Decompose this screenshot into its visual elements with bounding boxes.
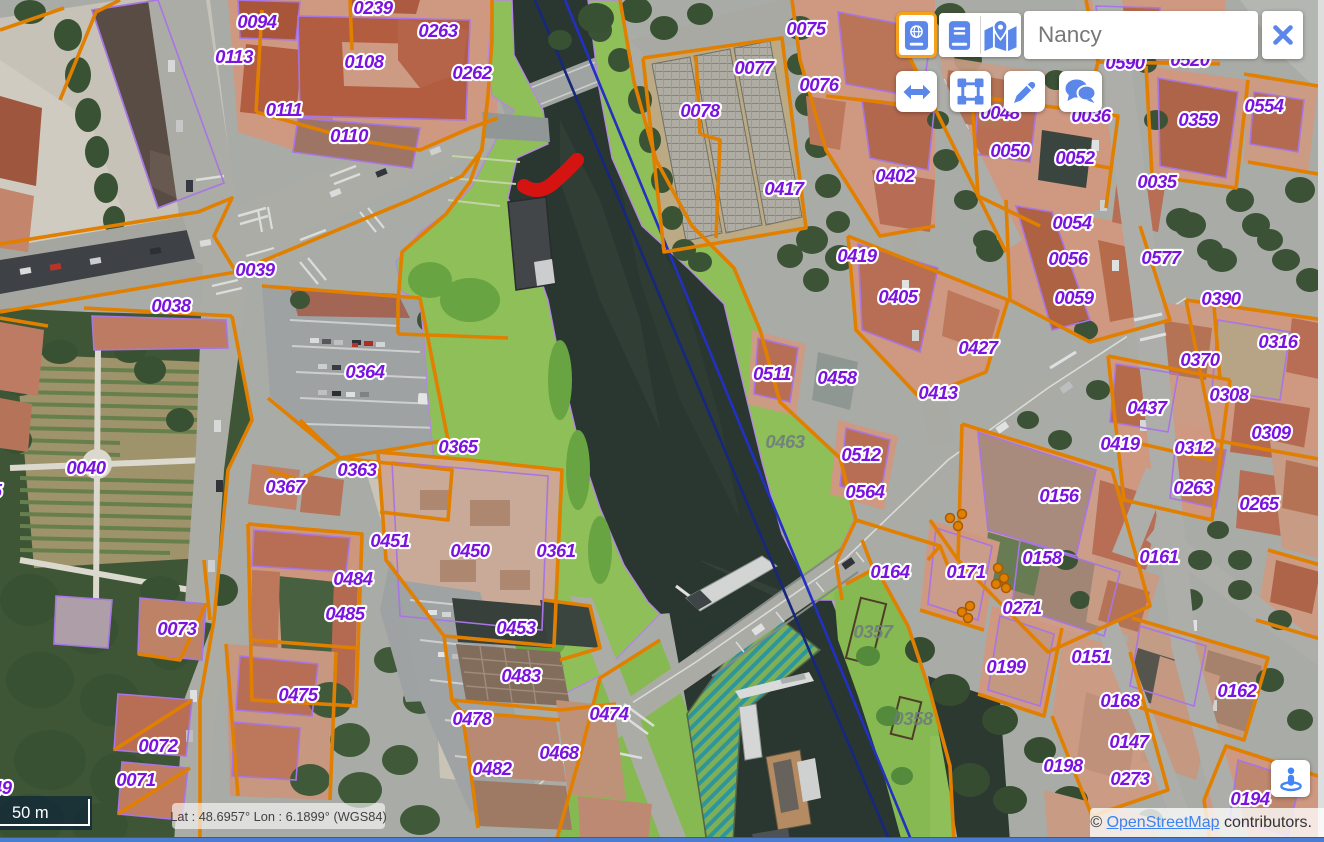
svg-text:0198: 0198: [1043, 755, 1083, 776]
svg-text:0108: 0108: [344, 51, 384, 72]
svg-text:0035: 0035: [1137, 171, 1177, 192]
svg-text:0071: 0071: [116, 769, 155, 790]
svg-text:0364: 0364: [345, 361, 384, 382]
svg-text:0054: 0054: [1052, 212, 1091, 233]
svg-text:0482: 0482: [472, 758, 512, 779]
svg-text:0040: 0040: [66, 457, 106, 478]
svg-text:0072: 0072: [138, 735, 178, 756]
svg-text:0554: 0554: [1244, 95, 1283, 116]
svg-text:0484: 0484: [333, 568, 372, 589]
svg-text:0358: 0358: [893, 708, 933, 729]
svg-text:0437: 0437: [1127, 397, 1168, 418]
svg-text:0468: 0468: [539, 742, 579, 763]
svg-text:0075: 0075: [786, 18, 826, 39]
svg-text:0312: 0312: [1174, 437, 1214, 458]
svg-text:0113: 0113: [215, 46, 254, 67]
svg-text:0077: 0077: [734, 57, 775, 78]
svg-text:0357: 0357: [853, 621, 894, 642]
svg-text:0199: 0199: [986, 656, 1026, 677]
svg-text:0449: 0449: [0, 777, 13, 798]
svg-text:0111: 0111: [266, 99, 303, 120]
svg-text:0564: 0564: [845, 481, 884, 502]
svg-text:0453: 0453: [496, 617, 536, 638]
svg-text:0147: 0147: [1109, 731, 1150, 752]
svg-text:0308: 0308: [1209, 384, 1249, 405]
svg-text:0038: 0038: [151, 295, 191, 316]
svg-text:0239: 0239: [353, 0, 393, 18]
svg-text:0171: 0171: [946, 561, 985, 582]
svg-text:0390: 0390: [1201, 288, 1241, 309]
svg-text:0078: 0078: [680, 100, 720, 121]
svg-text:0458: 0458: [817, 367, 857, 388]
svg-text:0478: 0478: [452, 708, 492, 729]
svg-text:0511: 0511: [753, 363, 791, 384]
svg-text:0367: 0367: [265, 476, 306, 497]
svg-text:0052: 0052: [1055, 147, 1095, 168]
svg-text:0262: 0262: [452, 62, 492, 83]
svg-text:0076: 0076: [799, 74, 839, 95]
svg-text:0151: 0151: [1071, 646, 1110, 667]
svg-text:0417: 0417: [764, 178, 805, 199]
svg-text:0363: 0363: [337, 459, 377, 480]
svg-text:0419: 0419: [837, 245, 877, 266]
svg-text:0483: 0483: [501, 665, 541, 686]
svg-text:0050: 0050: [990, 140, 1030, 161]
svg-text:0059: 0059: [1054, 287, 1094, 308]
svg-text:0162: 0162: [1217, 680, 1257, 701]
svg-text:0463: 0463: [765, 431, 805, 452]
svg-text:0263: 0263: [418, 20, 458, 41]
svg-text:0273: 0273: [1110, 768, 1150, 789]
svg-text:0110: 0110: [330, 125, 369, 146]
svg-text:0056: 0056: [1048, 248, 1088, 269]
svg-text:0405: 0405: [878, 286, 918, 307]
svg-text:0194: 0194: [1230, 788, 1269, 809]
svg-text:0474: 0474: [589, 703, 628, 724]
svg-text:0263: 0263: [1173, 477, 1213, 498]
svg-text:0370: 0370: [1180, 349, 1220, 370]
svg-text:0419: 0419: [1100, 433, 1140, 454]
svg-text:0450: 0450: [450, 540, 490, 561]
svg-text:0316: 0316: [1258, 331, 1298, 352]
svg-text:0168: 0168: [1100, 690, 1140, 711]
svg-text:0039: 0039: [235, 259, 275, 280]
svg-text:0451: 0451: [370, 530, 409, 551]
svg-text:0475: 0475: [278, 684, 318, 705]
svg-text:0359: 0359: [1178, 109, 1218, 130]
svg-text:0361: 0361: [536, 540, 575, 561]
svg-text:0309: 0309: [1251, 422, 1291, 443]
svg-text:0413: 0413: [918, 382, 958, 403]
svg-text:0161: 0161: [1139, 546, 1178, 567]
svg-text:0094: 0094: [237, 11, 276, 32]
svg-text:0271: 0271: [1002, 597, 1041, 618]
svg-text:0485: 0485: [325, 603, 365, 624]
svg-text:0156: 0156: [1039, 485, 1079, 506]
svg-text:0402: 0402: [875, 165, 915, 186]
svg-text:0427: 0427: [958, 337, 999, 358]
svg-text:0512: 0512: [841, 444, 881, 465]
svg-text:0164: 0164: [870, 561, 909, 582]
svg-text:0158: 0158: [1022, 547, 1062, 568]
svg-text:0365: 0365: [438, 436, 478, 457]
svg-text:0073: 0073: [157, 618, 197, 639]
svg-text:0577: 0577: [1141, 247, 1182, 268]
svg-text:0265: 0265: [1239, 493, 1279, 514]
